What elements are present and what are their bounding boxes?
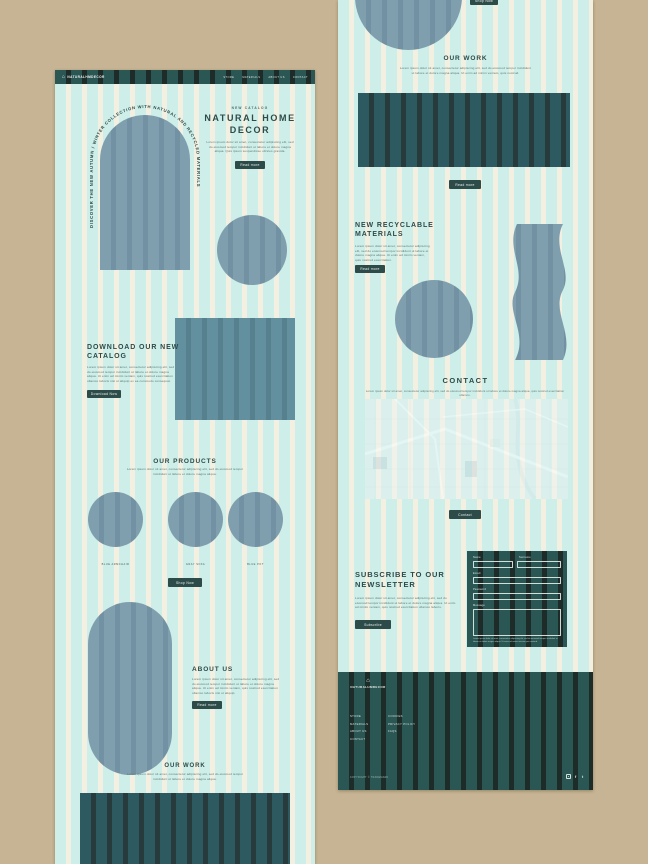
surname-input[interactable]: [517, 561, 561, 568]
download-now-button[interactable]: Download Now: [87, 390, 121, 398]
home-icon: ⌂: [346, 678, 390, 685]
name-label: Name: [473, 556, 481, 559]
footer-link-store[interactable]: STORE: [350, 714, 361, 718]
footer-social: f t: [566, 774, 585, 779]
nav-logo-text: NATURALHMDECOR: [67, 75, 104, 79]
message-label: Message: [473, 604, 485, 607]
footer-link-materials[interactable]: MATERIALS: [350, 722, 368, 726]
footer-logo-text: NATURALHMDECOR: [346, 685, 390, 689]
hero-eyebrow: NEW CATALOG: [195, 106, 305, 110]
work-image: [358, 93, 570, 167]
nav-link-about[interactable]: ABOUT US: [268, 76, 284, 79]
work-title-left: OUR WORK: [55, 763, 315, 771]
catalog-image-shape: [175, 318, 295, 420]
footer-link-about[interactable]: ABOUT US: [350, 729, 367, 733]
footer: ⌂ NATURALHMDECOR STORE MATERIALS ABOUT U…: [338, 672, 593, 790]
nav-link-materials[interactable]: MATERIALS: [242, 76, 260, 79]
nav-link-store[interactable]: STORE: [223, 76, 234, 79]
products-title: OUR PRODUCTS: [55, 458, 315, 466]
design-canvas: ⌂ NATURALHMDECOR STORE MATERIALS ABOUT U…: [0, 0, 648, 864]
home-icon: ⌂: [62, 75, 65, 80]
footer-logo[interactable]: ⌂ NATURALHMDECOR: [346, 678, 390, 689]
materials-circle-shape: [395, 280, 473, 358]
catalog-body: Lorem ipsum dolor sit amet, consectetur …: [87, 365, 175, 384]
twitter-icon[interactable]: t: [580, 774, 585, 779]
nav-links: STORE MATERIALS ABOUT US CONTACT: [223, 76, 308, 79]
footer-link-cookies[interactable]: COOKIES: [388, 714, 403, 718]
footer-link-contact[interactable]: CONTACT: [350, 737, 365, 741]
work-title: OUR WORK: [338, 55, 593, 63]
work-body-left: Lorem ipsum dolor sit amet, consectetur …: [120, 772, 250, 781]
name-input[interactable]: [473, 561, 513, 568]
about-title: ABOUT US: [192, 666, 282, 674]
hero-circle-shape: [217, 215, 287, 285]
top-circle-shape: [355, 0, 462, 50]
newsletter-title: SUBSCRIBE TO OUR NEWSLETTER: [355, 570, 473, 590]
message-textarea[interactable]: [473, 609, 561, 636]
top-shop-now-button[interactable]: Shop Now: [470, 0, 498, 5]
about-pill-shape: [88, 602, 172, 775]
footer-link-faqs[interactable]: FAQS: [388, 729, 397, 733]
contact-button[interactable]: Contact: [449, 510, 481, 519]
navbar: ⌂ NATURALHMDECOR STORE MATERIALS ABOUT U…: [55, 70, 315, 84]
contact-body: Lorem ipsum dolor sit amet, consectetur …: [365, 389, 565, 397]
work-image-left: [80, 793, 290, 864]
footer-copyright: COPYRIGHT © TRADEMARK: [350, 776, 389, 779]
materials-read-more-button[interactable]: Read more: [355, 265, 385, 273]
email-label: Email: [473, 572, 481, 575]
email-input[interactable]: [473, 577, 561, 584]
contact-map[interactable]: [365, 399, 568, 499]
work-body: Lorem ipsum dolor sit amet, consectetur …: [398, 66, 533, 75]
product-label-sofa: GRAY SOFA: [168, 563, 223, 566]
product-image-pot[interactable]: [228, 492, 283, 547]
hero-body: Lorem ipsum dolor sit amet, consectetur …: [205, 140, 295, 154]
nav-logo[interactable]: ⌂ NATURALHMDECOR: [62, 75, 105, 80]
about-read-more-button[interactable]: Read more: [192, 701, 222, 709]
map-stripe-overlay: [365, 399, 568, 499]
password-input[interactable]: [473, 593, 561, 600]
about-body: Lorem ipsum dolor sit amet, consectetur …: [192, 677, 280, 696]
footer-link-privacy[interactable]: PRIVACY POLICY: [388, 722, 415, 726]
newsletter-form-panel: Name Surname Email Password Message Lore…: [467, 551, 567, 647]
product-image-sofa[interactable]: [168, 492, 223, 547]
work-read-more-button[interactable]: Read more: [449, 180, 481, 189]
form-disclaimer: Lorem ipsum dolor sit amet, consectetur …: [473, 638, 561, 644]
surname-label: Surname: [519, 556, 531, 559]
page-lower: Shop Now OUR WORK Lorem ipsum dolor sit …: [338, 0, 593, 790]
materials-title: NEW RECYCLABLE MATERIALS: [355, 221, 450, 239]
instagram-icon[interactable]: [566, 774, 571, 779]
product-image-armchair[interactable]: [88, 492, 143, 547]
page-home: ⌂ NATURALHMDECOR STORE MATERIALS ABOUT U…: [55, 70, 315, 864]
newsletter-body: Lorem ipsum dolor sit amet, consectetur …: [355, 596, 460, 610]
product-label-pot: BLUE POT: [228, 563, 283, 566]
hero-arch-shape: [100, 115, 190, 270]
nav-link-contact[interactable]: CONTACT: [293, 76, 308, 79]
contact-title: CONTACT: [338, 376, 593, 386]
catalog-title: DOWNLOAD OUR NEW CATALOG: [87, 343, 185, 361]
materials-body: Lorem ipsum dolor sit amet, consectetur …: [355, 244, 431, 263]
password-label: Password: [473, 588, 486, 591]
shop-now-button[interactable]: Shop Now: [168, 578, 202, 587]
products-body: Lorem ipsum dolor sit amet, consectetur …: [120, 467, 250, 476]
facebook-icon[interactable]: f: [573, 774, 578, 779]
product-label-armchair: BLUE ARMCHAIR: [88, 563, 143, 566]
hero-title: NATURAL HOME DECOR: [195, 113, 305, 136]
subscribe-button[interactable]: Subscribe: [355, 620, 391, 629]
materials-wavy-shape: [505, 224, 572, 360]
hero-read-more-button[interactable]: Read more: [235, 161, 265, 169]
